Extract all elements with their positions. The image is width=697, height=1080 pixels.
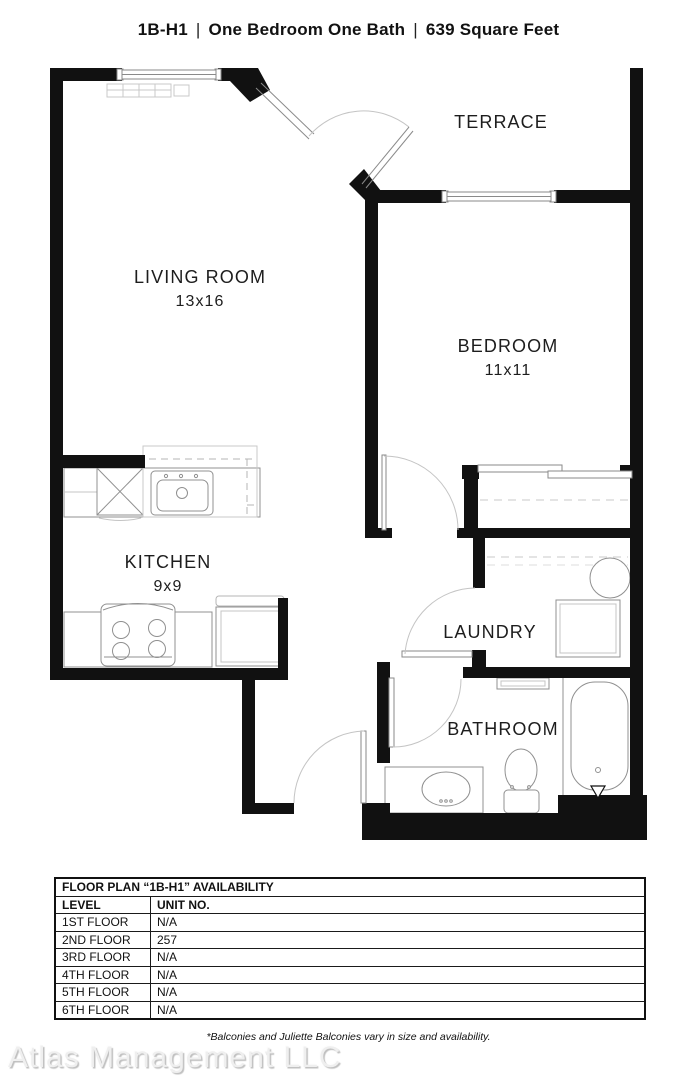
- vanity-sink: [385, 767, 483, 813]
- level-cell: 5TH FLOOR: [55, 984, 151, 1002]
- floor-plan-page: 1B-H1|One Bedroom One Bath|639 Square Fe…: [0, 0, 697, 1080]
- terrace-label: TERRACE: [454, 112, 548, 132]
- right-exterior-wall: [630, 68, 643, 813]
- bathtub: [563, 675, 635, 797]
- kitchen-bottom-wall: [50, 668, 288, 680]
- bedroom-window: [442, 191, 556, 202]
- laundry-fixtures: [487, 557, 630, 657]
- bathroom-label: BATHROOM: [447, 719, 558, 739]
- living-room-label: LIVING ROOM: [134, 267, 266, 287]
- entry-door: [294, 731, 366, 803]
- table-row: 5TH FLOOR N/A: [55, 984, 645, 1002]
- bedroom-label: BEDROOM: [458, 336, 559, 356]
- kitchen-counter-lower: [64, 596, 284, 667]
- bathroom-shelf: [497, 678, 549, 689]
- level-cell: 1ST FLOOR: [55, 914, 151, 932]
- dryer: [556, 600, 620, 657]
- living-bedroom-wall: [365, 190, 378, 538]
- laundry-label: LAUNDRY: [443, 622, 536, 642]
- level-cell: 4TH FLOOR: [55, 966, 151, 984]
- availability-table: FLOOR PLAN “1B-H1” AVAILABILITY LEVEL UN…: [54, 877, 646, 1020]
- floor-plan-drawing: LIVING ROOM 13x16 TERRACE BEDROOM 11x11 …: [0, 0, 697, 870]
- toilet: [504, 749, 539, 813]
- unit-cell: N/A: [151, 949, 646, 967]
- unit-cell: N/A: [151, 966, 646, 984]
- unit-cell: N/A: [151, 1001, 646, 1019]
- closet-sliding-doors: [478, 465, 632, 478]
- table-row: 6TH FLOOR N/A: [55, 1001, 645, 1019]
- media-console: [107, 84, 189, 97]
- living-room-dims: 13x16: [175, 293, 224, 310]
- level-cell: 6TH FLOOR: [55, 1001, 151, 1019]
- dishwasher: [97, 468, 143, 521]
- kitchen-dims: 9x9: [153, 578, 182, 595]
- column-header-level: LEVEL: [55, 896, 151, 914]
- stove: [101, 604, 175, 667]
- bathroom-top-wall: [463, 667, 632, 678]
- company-watermark: Atlas Management LLC: [8, 1041, 342, 1075]
- availability-table-title: FLOOR PLAN “1B-H1” AVAILABILITY: [55, 878, 645, 896]
- table-row: 4TH FLOOR N/A: [55, 966, 645, 984]
- bedroom-door: [382, 455, 458, 530]
- washer: [590, 558, 630, 598]
- table-row: 3RD FLOOR N/A: [55, 949, 645, 967]
- unit-cell: 257: [151, 931, 646, 949]
- table-row: 2ND FLOOR 257: [55, 931, 645, 949]
- level-cell: 2ND FLOOR: [55, 931, 151, 949]
- refrigerator: [216, 596, 284, 666]
- bedroom-dims: 11x11: [485, 362, 532, 379]
- left-exterior-wall: [50, 68, 63, 680]
- column-header-unit: UNIT NO.: [151, 896, 646, 914]
- unit-cell: N/A: [151, 914, 646, 932]
- terrace-door: [256, 83, 413, 188]
- living-room-window: [117, 69, 221, 80]
- table-row: 1ST FLOOR N/A: [55, 914, 645, 932]
- kitchen-label: KITCHEN: [125, 552, 212, 572]
- unit-cell: N/A: [151, 984, 646, 1002]
- level-cell: 3RD FLOOR: [55, 949, 151, 967]
- kitchen-sink: [151, 471, 213, 515]
